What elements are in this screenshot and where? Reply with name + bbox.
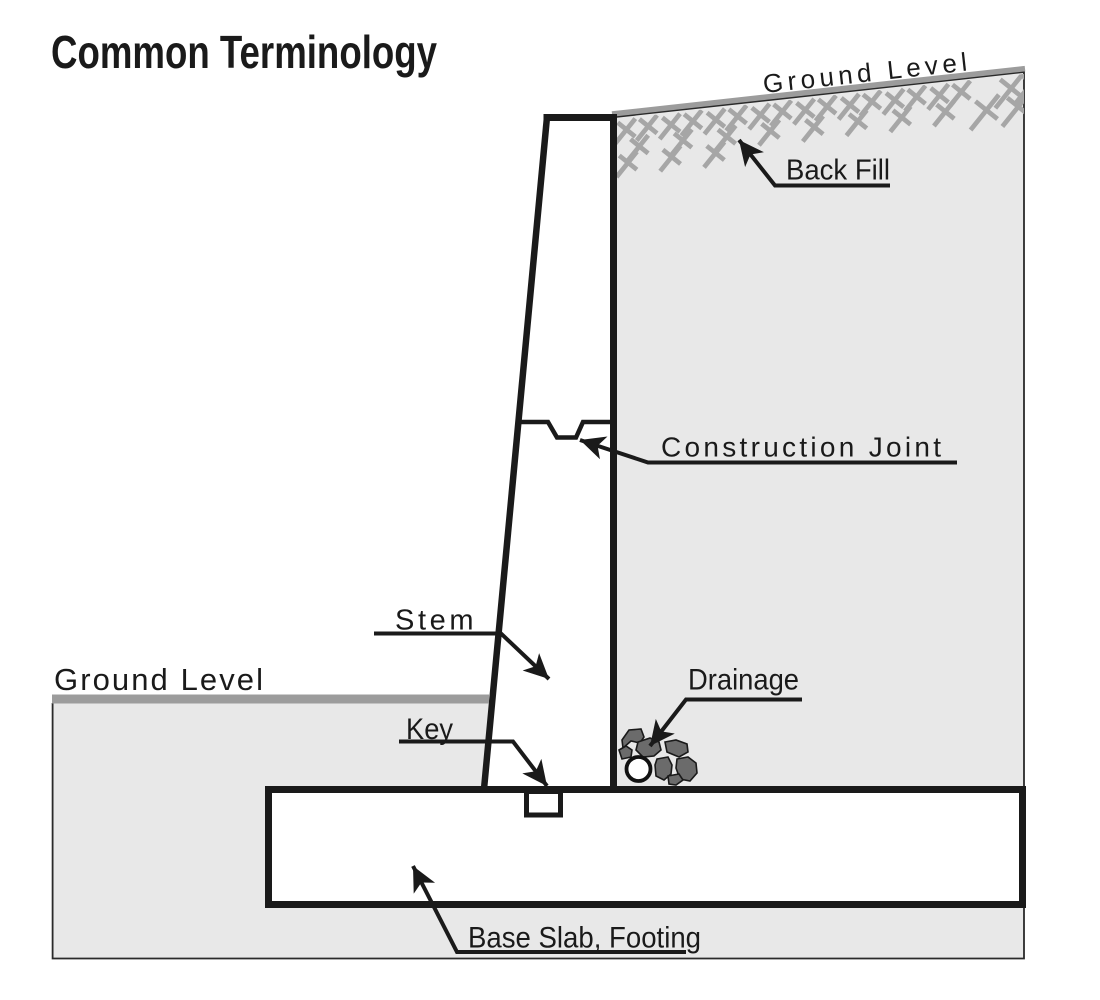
svg-text:Back Fill: Back Fill bbox=[786, 155, 890, 187]
svg-text:Stem: Stem bbox=[395, 605, 474, 637]
svg-text:Base Slab, Footing: Base Slab, Footing bbox=[468, 922, 701, 955]
svg-text:Drainage: Drainage bbox=[688, 664, 799, 697]
svg-text:Key: Key bbox=[406, 713, 453, 746]
svg-text:Ground Level: Ground Level bbox=[54, 662, 263, 697]
svg-text:Construction Joint: Construction Joint bbox=[661, 432, 941, 463]
svg-text:Common Terminology: Common Terminology bbox=[51, 26, 437, 78]
